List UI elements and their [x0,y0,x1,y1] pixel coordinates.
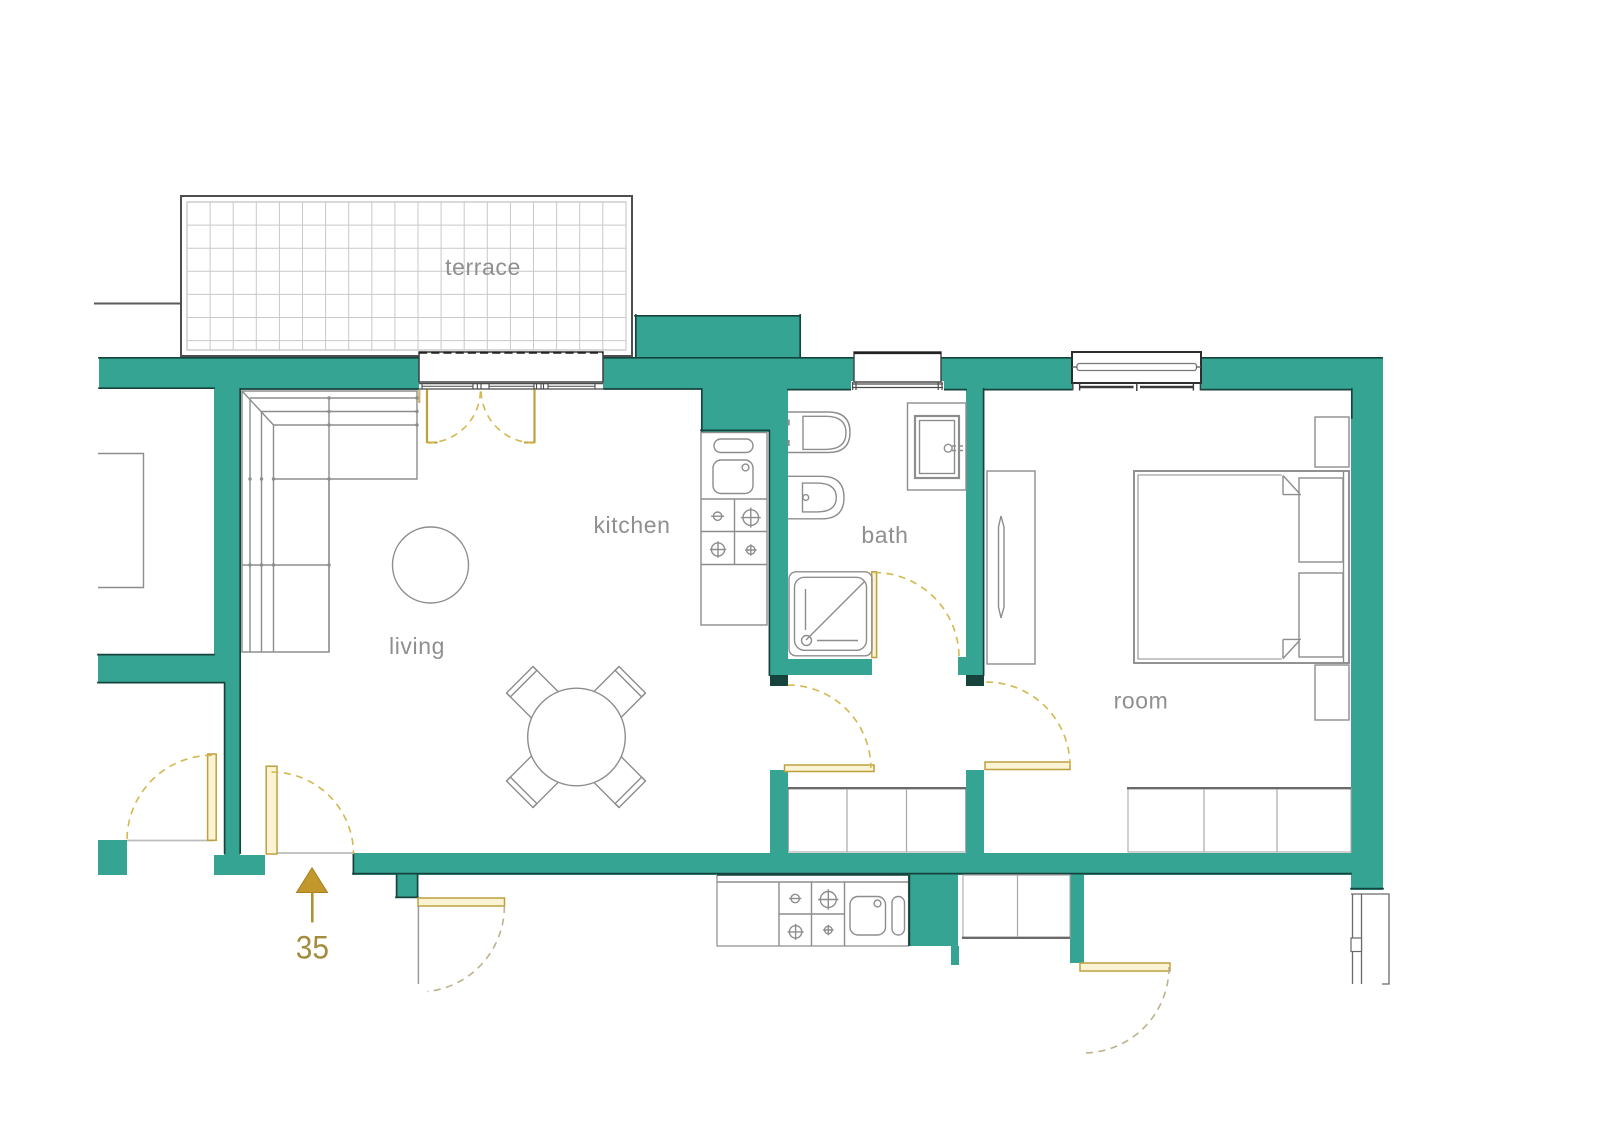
svg-text:35: 35 [296,929,329,965]
svg-text:room: room [1114,688,1169,714]
svg-text:bath: bath [861,522,908,548]
svg-text:terrace: terrace [445,254,521,280]
svg-text:kitchen: kitchen [593,512,670,538]
svg-text:living: living [389,633,445,659]
